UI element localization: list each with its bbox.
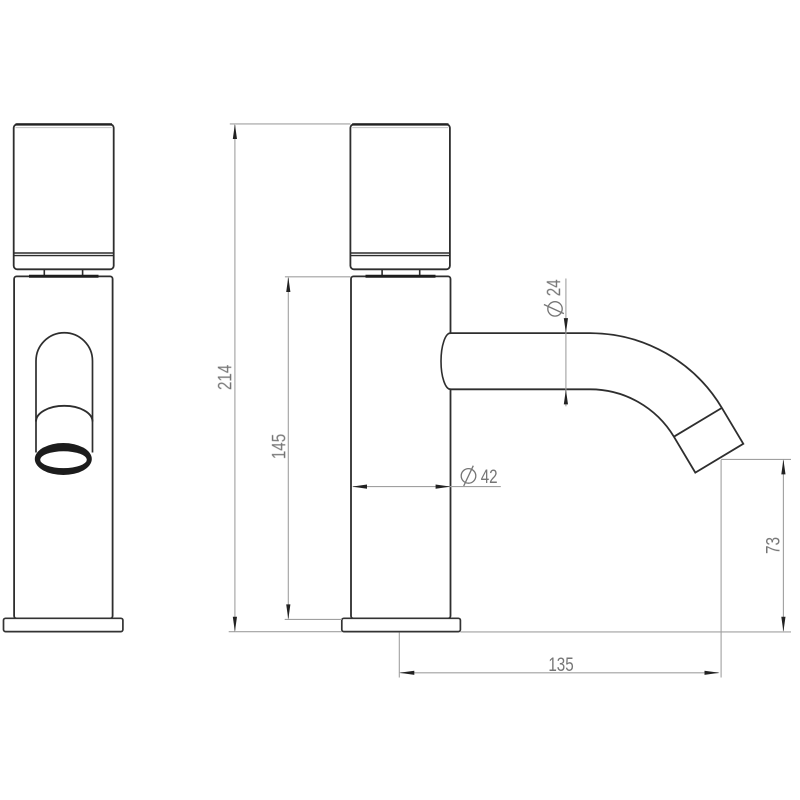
svg-text:73: 73 bbox=[762, 537, 784, 554]
svg-text:42: 42 bbox=[481, 465, 498, 487]
svg-text:135: 135 bbox=[548, 653, 573, 675]
svg-text:145: 145 bbox=[267, 434, 289, 459]
svg-text:24: 24 bbox=[542, 279, 564, 296]
svg-text:214: 214 bbox=[213, 364, 235, 390]
